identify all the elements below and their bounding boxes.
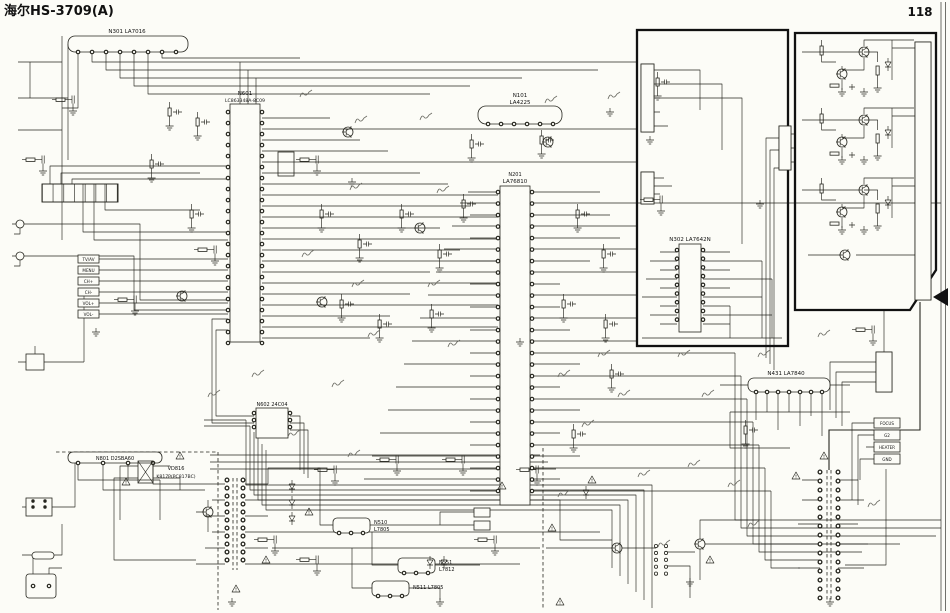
- ic-n601-mcu: N601 LC863348A-8C09: [225, 91, 265, 343]
- drive-transformer: [656, 546, 666, 580]
- ac-input: [26, 498, 56, 598]
- n511-label: N511 L7805: [413, 585, 443, 591]
- front-key-tvav: TV/AV: [78, 255, 99, 263]
- n510-designator: N510: [374, 520, 387, 526]
- video-amp-stage-green: [802, 108, 914, 164]
- ic-n301-label: N301 LA7016: [108, 29, 146, 35]
- transistor-icon: [839, 249, 850, 261]
- ic-n101-la4225: N101 LA4225: [478, 93, 562, 124]
- av-input-jacks: [12, 220, 24, 266]
- schematic-canvas: 海尔HS-3709(A) 118 N301 LA7016 TV/AV MENU …: [0, 0, 950, 613]
- ic-n602-label: N602 24C04: [256, 402, 287, 408]
- ic-n201-designator: N201: [508, 172, 521, 178]
- front-key-label: VOL+: [83, 301, 95, 306]
- reset-ic-box: [278, 152, 294, 176]
- video-amp-stage-red: [802, 40, 914, 96]
- comb-board-connector-a: [641, 64, 654, 132]
- ic-n302-label: N302 LA7642N: [669, 237, 710, 243]
- crt-lead-label-gnd: GND: [882, 457, 891, 462]
- vd816-designator: VD816: [168, 466, 185, 472]
- crt-lead-label-focus: FOCUS: [880, 421, 894, 426]
- yoke-connector: [876, 352, 892, 392]
- video-amp-stage-blue: [802, 178, 914, 234]
- front-key-label: VOL-: [84, 312, 94, 317]
- ic-n601-designator: N601: [238, 91, 253, 97]
- front-key-panel: TV/AV MENU CH+ CH- VOL+ VOL-: [78, 255, 99, 318]
- front-key-label: CH-: [85, 290, 93, 295]
- front-key-menu: MENU: [78, 266, 99, 274]
- ic-n301-la7016: N301 LA7016: [68, 29, 188, 52]
- left-module-box: [26, 354, 44, 370]
- vd816-part: K817P(PC817BC): [156, 474, 195, 480]
- ic-n201-part: LA76810: [503, 179, 528, 185]
- front-key-vol-down: VOL-: [78, 310, 99, 318]
- power-supply: N801 D2SBA60 VD816 K817P(PC817BC): [26, 452, 243, 598]
- crt-lead-label-heater: HEATER: [879, 445, 895, 450]
- crt-socket-labels: FOCUS G2 HEATER GND: [874, 418, 900, 464]
- ic-n431-la7840: N431 LA7840: [748, 371, 830, 392]
- tuner-connector: [42, 184, 118, 202]
- ac-plug: [26, 574, 56, 598]
- schematic-page: 海尔HS-3709(A) 118 N301 LA7016 TV/AV MENU …: [0, 0, 950, 613]
- page-title: 海尔HS-3709(A): [4, 3, 114, 19]
- comb-board-connector-b: [641, 172, 654, 204]
- front-key-vol-up: VOL+: [78, 299, 99, 307]
- comb-filter-board-outline: [637, 30, 788, 346]
- regulator-n511: N511 L7805: [372, 581, 443, 596]
- crt-socket-strip: [915, 42, 931, 300]
- fuse: [32, 552, 54, 559]
- board-link-connector: [779, 126, 791, 170]
- front-key-label: TV/AV: [81, 257, 94, 262]
- flyback-transformer: [820, 472, 838, 598]
- crt-board: [779, 40, 931, 300]
- front-key-label: CH+: [84, 279, 93, 284]
- page-edge-arrow-icon: [933, 288, 948, 306]
- page-number: 118: [907, 5, 932, 19]
- ic-n101-part: LA4225: [510, 100, 531, 106]
- ic-n602-eeprom: N602 24C04: [254, 402, 290, 438]
- n510-part: L7805: [374, 527, 390, 533]
- ic-n431-label: N431 LA7840: [767, 371, 805, 377]
- crt-lead-label-g2: G2: [884, 433, 890, 438]
- front-key-ch-up: CH+: [78, 277, 99, 285]
- wire-mesh: [18, 2, 948, 611]
- smps-transformer: [227, 480, 243, 568]
- ic-n601-part: LC863348A-8C09: [225, 98, 265, 104]
- n551-part: L7812: [439, 567, 455, 573]
- front-key-label: MENU: [82, 268, 94, 273]
- front-key-ch-down: CH-: [78, 288, 99, 296]
- ic-n201-la76810: N201 LA76810: [498, 172, 532, 505]
- ic-n302-la7642n: N302 LA7642N: [669, 237, 710, 332]
- ic-n101-designator: N101: [513, 93, 528, 99]
